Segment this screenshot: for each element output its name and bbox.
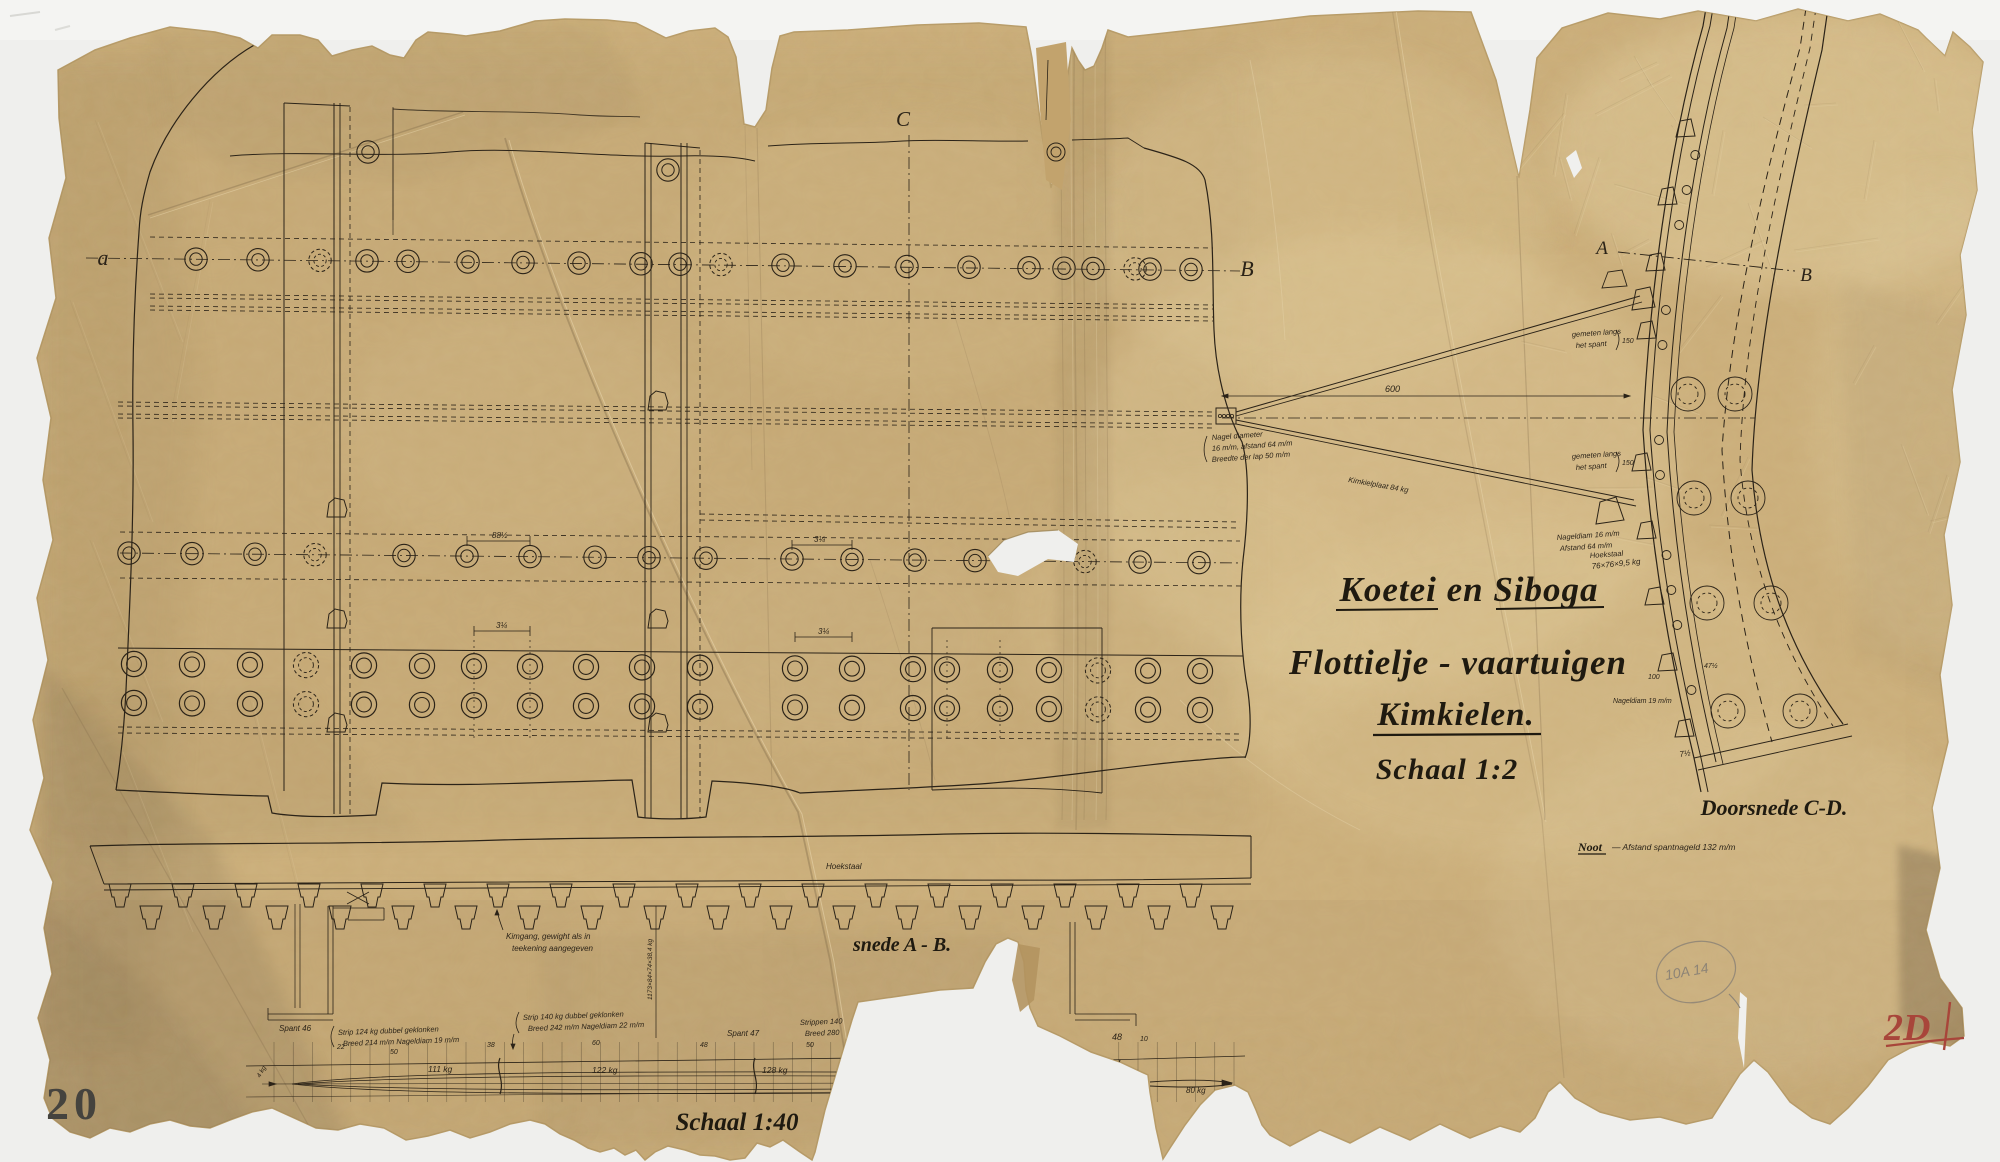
svg-text:3¼: 3¼ [496,621,507,630]
svg-text:B: B [1240,256,1253,281]
svg-text:Breed 280: Breed 280 [805,1028,841,1038]
svg-text:a: a [98,245,109,270]
svg-text:Flottielje - vaartuigen: Flottielje - vaartuigen [1288,643,1627,682]
svg-text:teekening aangegeven: teekening aangegeven [512,944,594,953]
svg-text:38: 38 [487,1042,495,1049]
svg-text:100: 100 [1648,674,1660,681]
svg-text:122 kg: 122 kg [592,1065,618,1075]
svg-text:snede A - B.: snede A - B. [852,934,951,956]
svg-text:Doorsnede C-D.: Doorsnede C-D. [1700,795,1848,820]
svg-text:B: B [1800,265,1812,286]
svg-text:Kimkielen.: Kimkielen. [1376,697,1535,733]
svg-text:111 kg: 111 kg [428,1064,453,1074]
svg-text:Spant 47: Spant 47 [727,1029,760,1038]
svg-text:1173×84×74×38,4 kg: 1173×84×74×38,4 kg [647,938,654,1000]
svg-text:3¼: 3¼ [814,535,825,544]
svg-text:60: 60 [592,1040,600,1047]
svg-text:48: 48 [1112,1032,1122,1042]
svg-text:20: 20 [46,1078,102,1129]
svg-text:88½: 88½ [492,531,508,540]
svg-text:— Afstand spantnageld 132 m/m: — Afstand spantnageld 132 m/m [1611,842,1735,852]
svg-text:Koetei en Siboga: Koetei en Siboga [1338,570,1598,609]
svg-text:10: 10 [1140,1036,1148,1043]
svg-text:80 kg: 80 kg [1186,1086,1206,1095]
svg-text:Noot: Noot [1577,840,1603,854]
svg-text:Nageldiam 19 m/m: Nageldiam 19 m/m [1613,698,1672,705]
svg-text:Kimgang, gewight als in: Kimgang, gewight als in [506,932,591,941]
svg-text:Spant 46: Spant 46 [279,1024,312,1033]
svg-text:C: C [896,107,911,131]
svg-text:Strippen 140: Strippen 140 [800,1016,844,1027]
svg-text:600: 600 [1385,384,1400,394]
svg-text:150: 150 [1622,338,1634,345]
svg-text:48: 48 [700,1042,708,1049]
svg-text:47½: 47½ [1704,662,1718,670]
svg-text:Hoekstaal: Hoekstaal [826,862,862,871]
svg-text:3¼: 3¼ [818,627,829,636]
svg-text:Schaal 1:2: Schaal 1:2 [1376,753,1519,786]
svg-text:128 kg: 128 kg [762,1065,788,1075]
svg-text:150: 150 [1622,460,1634,467]
svg-text:A: A [1594,238,1608,259]
svg-text:Schaal 1:40: Schaal 1:40 [676,1109,799,1136]
svg-text:50: 50 [390,1049,398,1056]
svg-text:50: 50 [806,1042,814,1049]
